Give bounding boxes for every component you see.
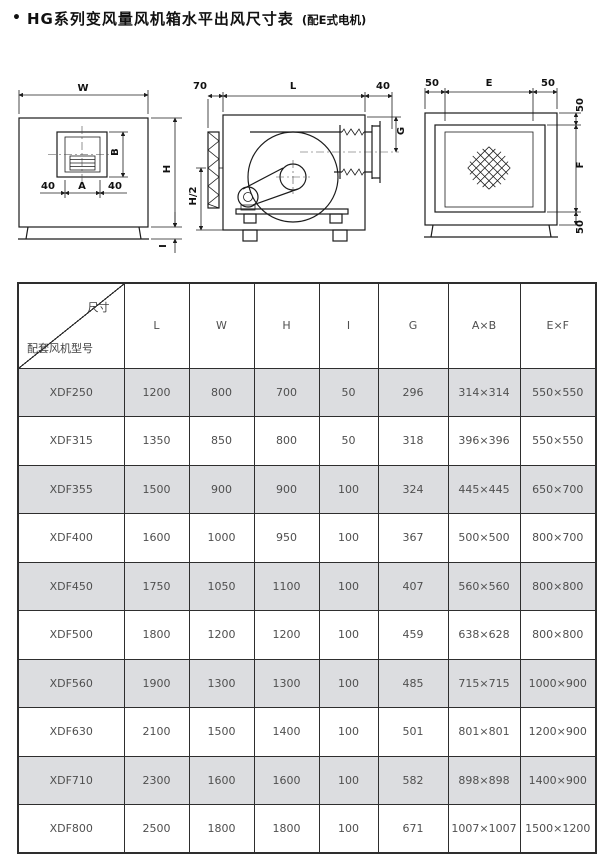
value-cell-g: 459 [378, 611, 448, 660]
table-row: XDF400 1600 1000 950 100 367 500×500 800… [18, 514, 596, 563]
side-dim-40-label: 40 [376, 81, 390, 92]
value-cell-i: 100 [319, 659, 378, 708]
column-header-i: I [319, 283, 378, 368]
value-cell-g: 318 [378, 417, 448, 466]
value-cell-g: 671 [378, 805, 448, 854]
value-cell-h: 1600 [254, 756, 319, 805]
value-cell-g: 407 [378, 562, 448, 611]
rear-dim-50-right-top-label: 50 [575, 98, 586, 112]
fan-model-cell: XDF355 [18, 465, 124, 514]
value-cell-exf: 1400×900 [520, 756, 596, 805]
fan-model-cell: XDF315 [18, 417, 124, 466]
fan-model-cell: XDF450 [18, 562, 124, 611]
fan-model-cell: XDF800 [18, 805, 124, 854]
inlet-mesh-pattern [464, 143, 513, 192]
technical-drawings: B A 40 40 W H I [0, 0, 607, 275]
front-dim-40-left-label: 40 [41, 181, 55, 192]
value-cell-axb: 638×628 [448, 611, 520, 660]
value-cell-exf: 1000×900 [520, 659, 596, 708]
column-header-l: L [124, 283, 189, 368]
rear-dim-50-top-left-label: 50 [425, 78, 439, 89]
value-cell-i: 50 [319, 368, 378, 417]
fan-model-cell: XDF560 [18, 659, 124, 708]
value-cell-h: 700 [254, 368, 319, 417]
rear-dim-50-top-right-label: 50 [541, 78, 555, 89]
value-cell-axb: 500×500 [448, 514, 520, 563]
fan-model-cell: XDF250 [18, 368, 124, 417]
value-cell-axb: 715×715 [448, 659, 520, 708]
dimension-table: 尺寸 配套风机型号 L W H I G A×B E×F XDF250 1200 … [17, 282, 597, 854]
front-dim-40-right-label: 40 [108, 181, 122, 192]
value-cell-h: 900 [254, 465, 319, 514]
value-cell-exf: 550×550 [520, 417, 596, 466]
value-cell-w: 1050 [189, 562, 254, 611]
column-header-h: H [254, 283, 319, 368]
fan-model-cell: XDF710 [18, 756, 124, 805]
value-cell-i: 100 [319, 756, 378, 805]
value-cell-h: 1100 [254, 562, 319, 611]
value-cell-l: 1750 [124, 562, 189, 611]
value-cell-g: 296 [378, 368, 448, 417]
corner-label-dimension: 尺寸 [88, 299, 110, 315]
value-cell-axb: 445×445 [448, 465, 520, 514]
value-cell-w: 1300 [189, 659, 254, 708]
table-row: XDF800 2500 1800 1800 100 671 1007×1007 … [18, 805, 596, 854]
value-cell-l: 2500 [124, 805, 189, 854]
value-cell-l: 2300 [124, 756, 189, 805]
value-cell-l: 2100 [124, 708, 189, 757]
front-dim-b-label: B [110, 148, 121, 156]
value-cell-w: 900 [189, 465, 254, 514]
value-cell-g: 582 [378, 756, 448, 805]
value-cell-exf: 1200×900 [520, 708, 596, 757]
value-cell-exf: 1500×1200 [520, 805, 596, 854]
side-dim-70-label: 70 [193, 81, 207, 92]
value-cell-g: 324 [378, 465, 448, 514]
fan-model-cell: XDF500 [18, 611, 124, 660]
value-cell-exf: 800×800 [520, 611, 596, 660]
table-row: XDF355 1500 900 900 100 324 445×445 650×… [18, 465, 596, 514]
value-cell-exf: 650×700 [520, 465, 596, 514]
side-dim-l-label: L [290, 81, 297, 92]
value-cell-l: 1900 [124, 659, 189, 708]
table-row: XDF450 1750 1050 1100 100 407 560×560 80… [18, 562, 596, 611]
value-cell-i: 50 [319, 417, 378, 466]
front-dim-a-label: A [78, 181, 86, 192]
value-cell-axb: 314×314 [448, 368, 520, 417]
value-cell-axb: 560×560 [448, 562, 520, 611]
value-cell-l: 1800 [124, 611, 189, 660]
table-row: XDF315 1350 850 800 50 318 396×396 550×5… [18, 417, 596, 466]
table-row: XDF250 1200 800 700 50 296 314×314 550×5… [18, 368, 596, 417]
front-dim-w-label: W [77, 83, 88, 94]
column-header-exf: E×F [520, 283, 596, 368]
value-cell-w: 850 [189, 417, 254, 466]
value-cell-i: 100 [319, 611, 378, 660]
value-cell-w: 800 [189, 368, 254, 417]
value-cell-g: 485 [378, 659, 448, 708]
table-row: XDF630 2100 1500 1400 100 501 801×801 12… [18, 708, 596, 757]
value-cell-h: 950 [254, 514, 319, 563]
side-dim-g-label: G [396, 127, 407, 135]
value-cell-i: 100 [319, 465, 378, 514]
table-body: XDF250 1200 800 700 50 296 314×314 550×5… [18, 368, 596, 853]
value-cell-axb: 396×396 [448, 417, 520, 466]
value-cell-exf: 800×800 [520, 562, 596, 611]
column-header-axb: A×B [448, 283, 520, 368]
value-cell-w: 1000 [189, 514, 254, 563]
value-cell-h: 1800 [254, 805, 319, 854]
front-view-drawing: B A 40 40 W H I [18, 83, 182, 253]
value-cell-w: 1200 [189, 611, 254, 660]
rear-dim-f-label: F [575, 162, 586, 169]
value-cell-l: 1500 [124, 465, 189, 514]
value-cell-h: 800 [254, 417, 319, 466]
side-view-drawing: 70 L 40 G H/2 [188, 81, 407, 241]
column-header-g: G [378, 283, 448, 368]
rear-dim-e-label: E [486, 78, 493, 89]
value-cell-i: 100 [319, 514, 378, 563]
corner-label-fan-model: 配套风机型号 [27, 340, 93, 356]
table-header-row: 尺寸 配套风机型号 L W H I G A×B E×F [18, 283, 596, 368]
column-header-w: W [189, 283, 254, 368]
value-cell-l: 1350 [124, 417, 189, 466]
value-cell-i: 100 [319, 562, 378, 611]
table-corner-cell: 尺寸 配套风机型号 [18, 283, 124, 368]
value-cell-axb: 898×898 [448, 756, 520, 805]
value-cell-i: 100 [319, 805, 378, 854]
value-cell-exf: 550×550 [520, 368, 596, 417]
value-cell-l: 1600 [124, 514, 189, 563]
fan-model-cell: XDF630 [18, 708, 124, 757]
value-cell-exf: 800×700 [520, 514, 596, 563]
front-dim-h-label: H [162, 165, 173, 173]
value-cell-g: 501 [378, 708, 448, 757]
value-cell-axb: 1007×1007 [448, 805, 520, 854]
rear-dim-50-right-bottom-label: 50 [575, 220, 586, 234]
table-row: XDF560 1900 1300 1300 100 485 715×715 10… [18, 659, 596, 708]
value-cell-axb: 801×801 [448, 708, 520, 757]
value-cell-g: 367 [378, 514, 448, 563]
value-cell-w: 1800 [189, 805, 254, 854]
value-cell-l: 1200 [124, 368, 189, 417]
front-dim-i-label: I [158, 244, 169, 248]
value-cell-h: 1400 [254, 708, 319, 757]
table-row: XDF710 2300 1600 1600 100 582 898×898 14… [18, 756, 596, 805]
table-row: XDF500 1800 1200 1200 100 459 638×628 80… [18, 611, 596, 660]
side-dim-h2-label: H/2 [188, 186, 199, 205]
value-cell-h: 1300 [254, 659, 319, 708]
page: { "title": { "bullet": "•", "text": "HG系… [0, 0, 607, 859]
value-cell-w: 1500 [189, 708, 254, 757]
fan-model-cell: XDF400 [18, 514, 124, 563]
value-cell-w: 1600 [189, 756, 254, 805]
rear-view-drawing: 50 E 50 50 F 50 [424, 78, 586, 237]
value-cell-h: 1200 [254, 611, 319, 660]
value-cell-i: 100 [319, 708, 378, 757]
